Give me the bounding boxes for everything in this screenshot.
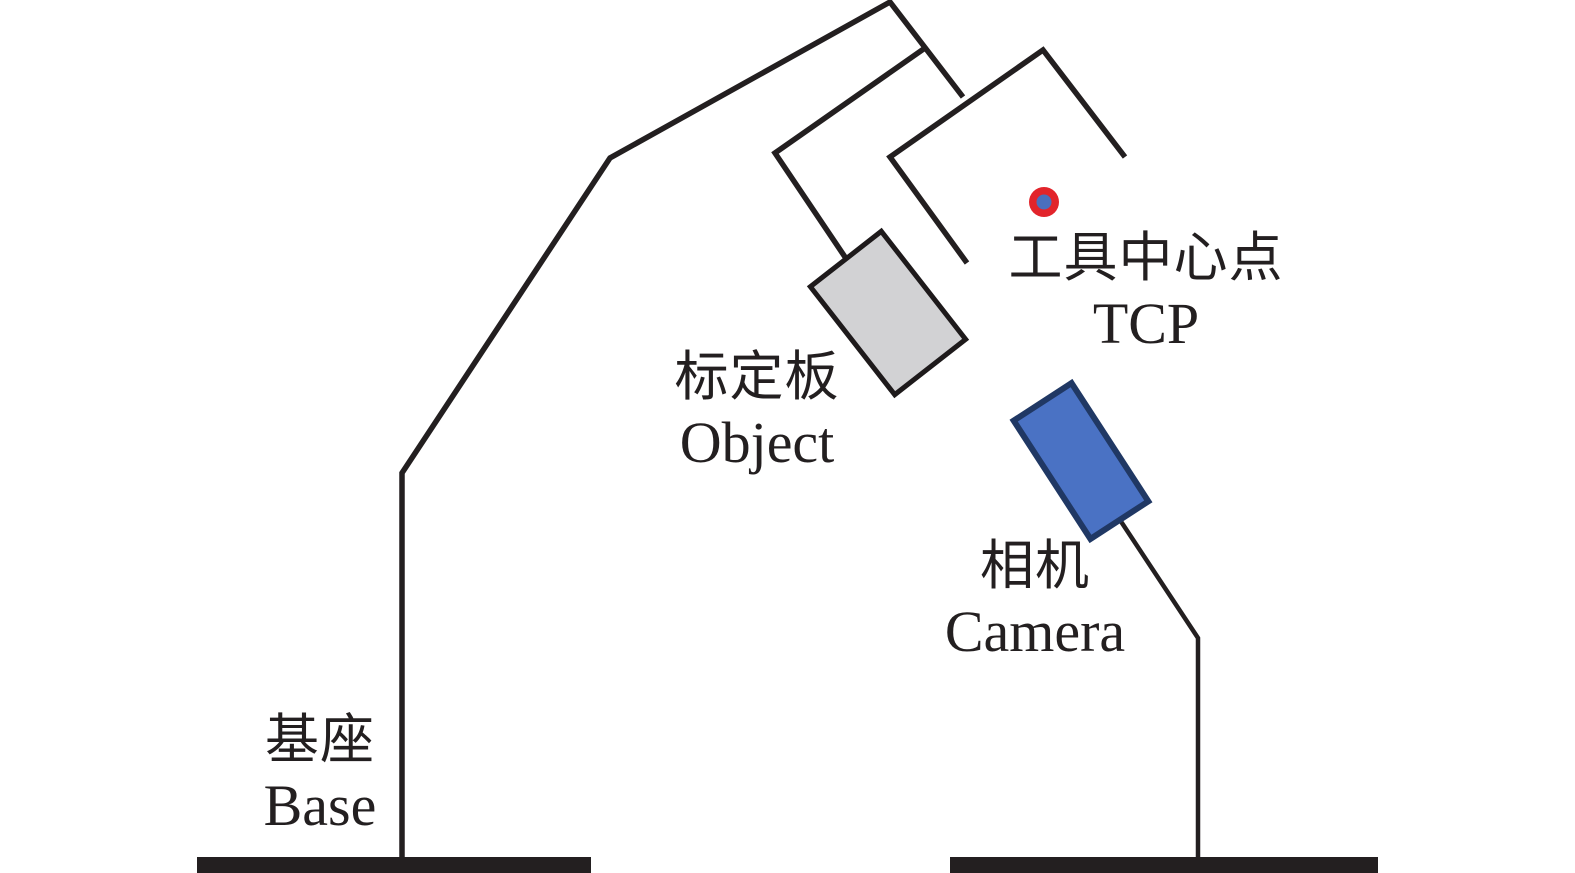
label-base-zh: 基座 (264, 707, 377, 773)
base-floor-left-bar (197, 857, 591, 873)
label-board-en: Object (675, 410, 840, 476)
label-camera-en: Camera (945, 599, 1125, 665)
label-calibration-board: 标定板 Object (675, 344, 840, 476)
camera-mount-line (1120, 520, 1198, 858)
label-tcp-en: TCP (1009, 291, 1284, 357)
label-tcp: 工具中心点 TCP (1009, 225, 1284, 357)
camera-shape (1014, 383, 1149, 539)
label-camera: 相机 Camera (945, 533, 1125, 665)
label-base-en: Base (264, 773, 377, 839)
label-tcp-zh: 工具中心点 (1009, 225, 1284, 291)
figure-canvas: 工具中心点 TCP 标定板 Object 相机 Camera 基座 Base (0, 0, 1575, 873)
label-camera-zh: 相机 (945, 533, 1125, 599)
tcp-marker-inner (1037, 195, 1052, 210)
base-floor-right-bar (950, 857, 1378, 873)
label-base: 基座 Base (264, 707, 377, 839)
gripper-finger-line (775, 48, 925, 257)
label-board-zh: 标定板 (675, 344, 840, 410)
